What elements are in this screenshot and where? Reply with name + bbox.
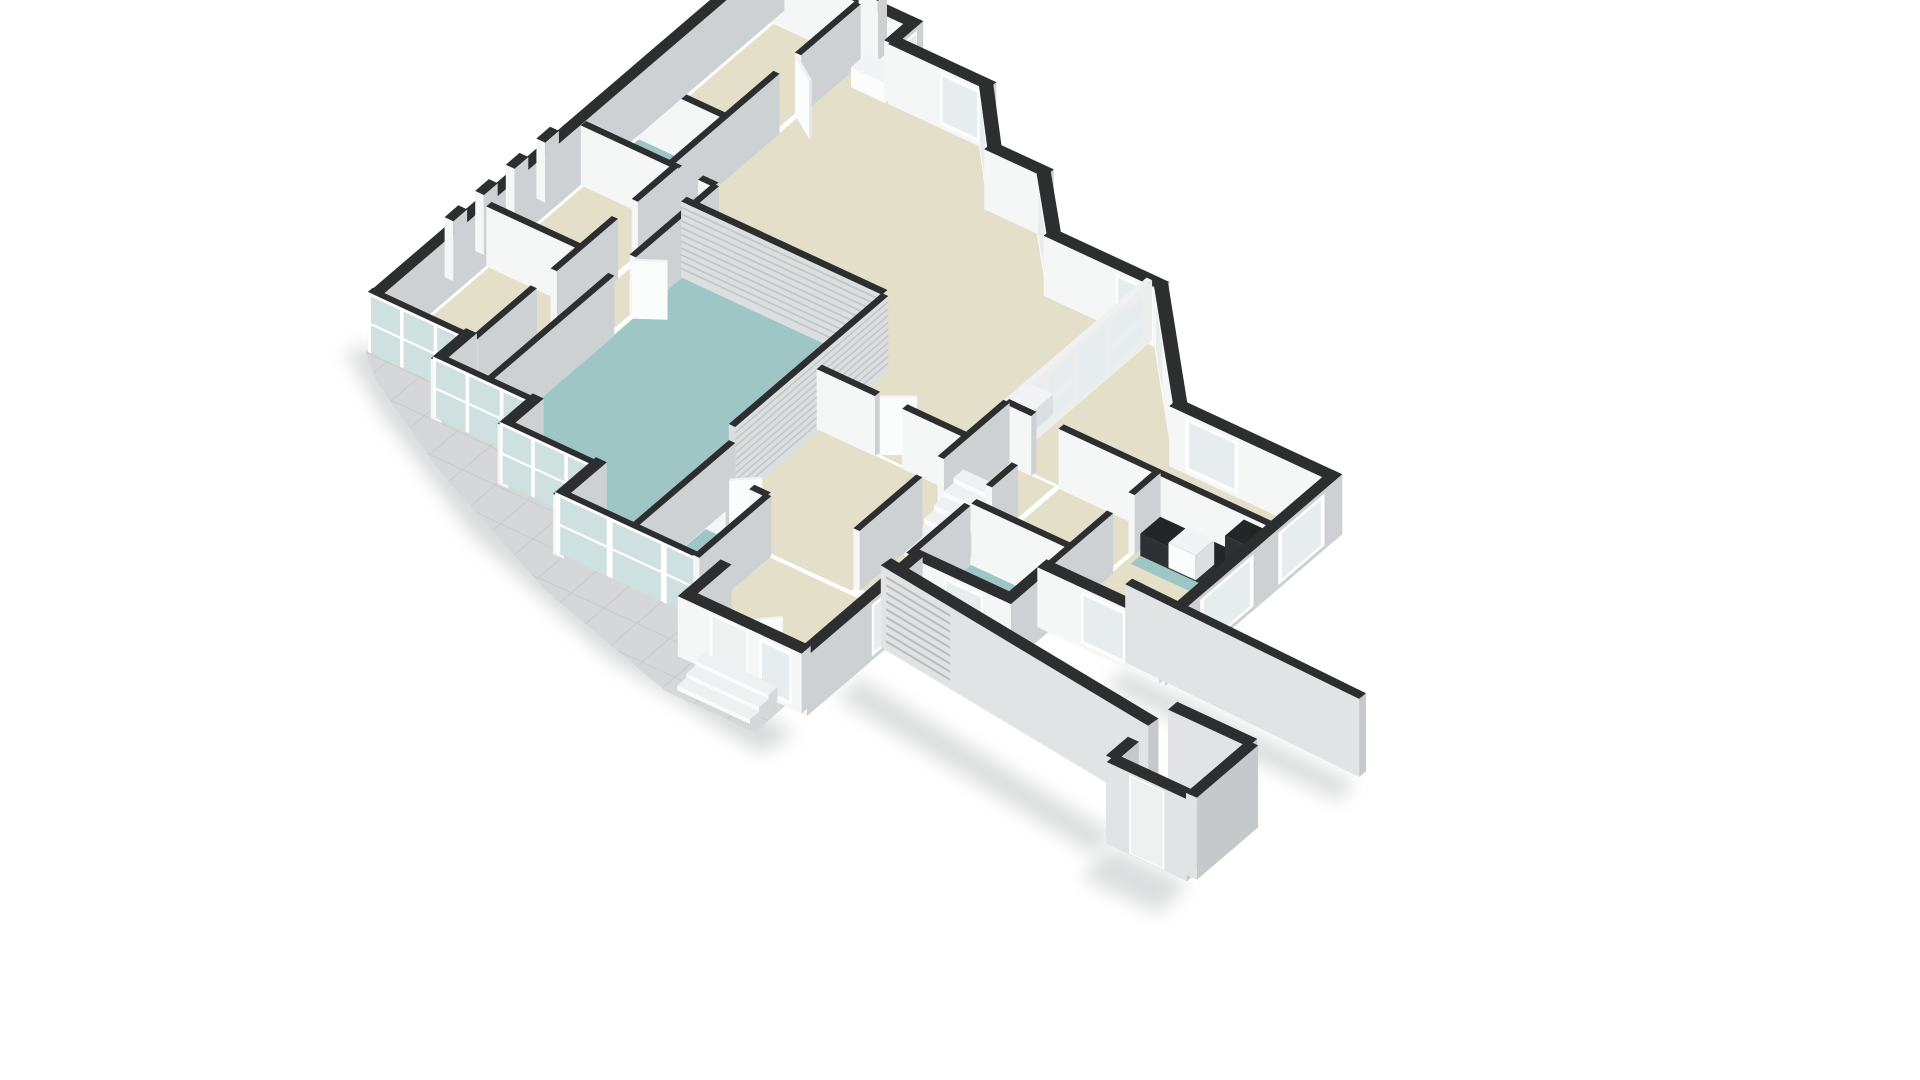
door-leaf-strip-face	[809, 80, 812, 139]
wall-nw-stub-4-face	[445, 217, 454, 281]
wall-nw-stub-1-face	[545, 131, 559, 203]
wall-ne-stub-face	[859, 0, 878, 61]
floorplan-viewport	[0, 0, 1920, 1080]
wall-kitchen-w-a-face	[1128, 492, 1134, 555]
door-leaf-hall-top	[880, 395, 918, 397]
floorplan-svg	[0, 0, 1920, 1080]
wall-s-entry-face	[802, 646, 811, 714]
door-leaf-corridor-face	[667, 260, 668, 320]
garden-panel-face	[1359, 693, 1366, 777]
door-leaf-corridor-face	[632, 261, 668, 320]
wall-nw-stub-1-face	[536, 139, 545, 203]
wall-hall-e-b-face	[853, 528, 859, 591]
wall-dining-s-a-face	[1031, 412, 1036, 476]
wall-nw-stub-4-face	[453, 209, 467, 281]
wall-nw-stub-3-face	[475, 191, 484, 255]
wall-hall-n-a-face	[875, 392, 880, 456]
porch-wall-s-door	[1131, 777, 1163, 868]
porch-wall-e-face	[1186, 793, 1197, 880]
